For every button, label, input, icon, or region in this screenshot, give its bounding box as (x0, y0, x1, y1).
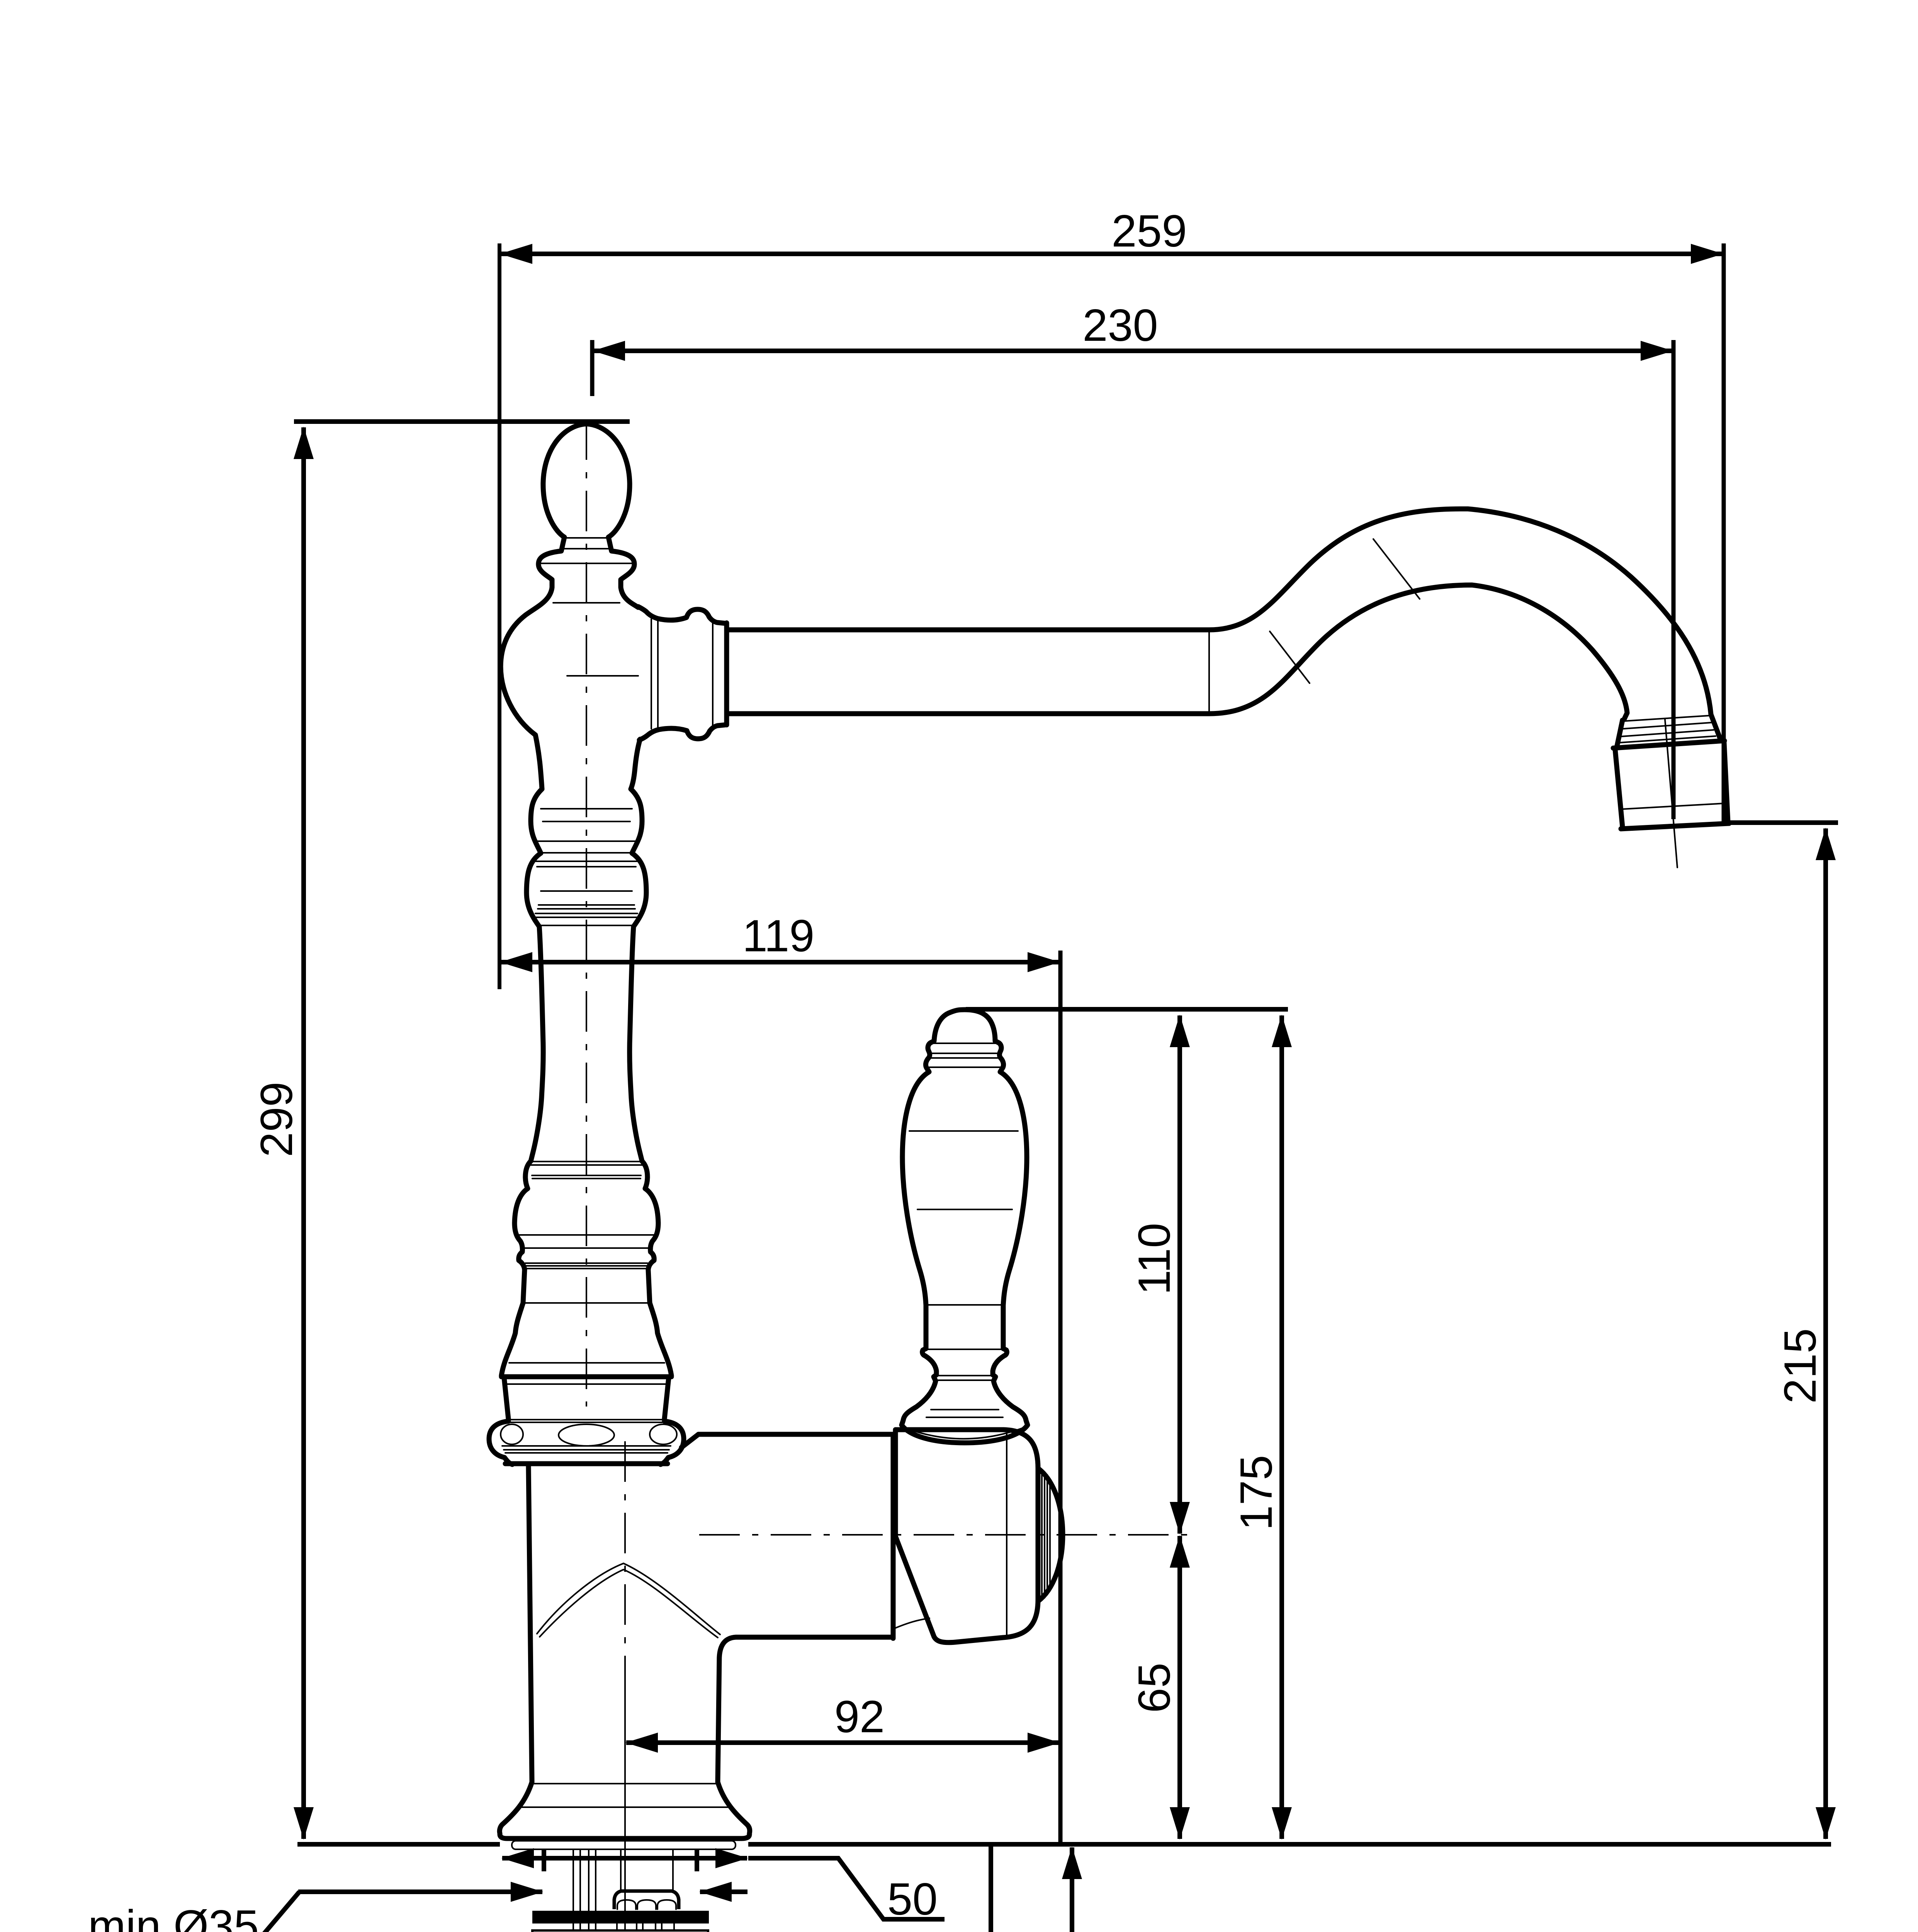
svg-text:65: 65 (1129, 1663, 1179, 1713)
svg-text:92: 92 (834, 1691, 885, 1742)
svg-text:119: 119 (742, 910, 815, 961)
svg-text:175: 175 (1231, 1455, 1281, 1530)
svg-text:230: 230 (1082, 300, 1158, 350)
svg-text:259: 259 (1111, 206, 1187, 256)
svg-text:es. 11: es. 11 (411, 1924, 544, 1932)
svg-text:110: 110 (1129, 1223, 1179, 1295)
svg-text:50: 50 (887, 1874, 938, 1924)
svg-text:215: 215 (1775, 1328, 1825, 1403)
svg-text:299: 299 (251, 1082, 302, 1157)
svg-text:min Ø35: min Ø35 (88, 1901, 259, 1932)
